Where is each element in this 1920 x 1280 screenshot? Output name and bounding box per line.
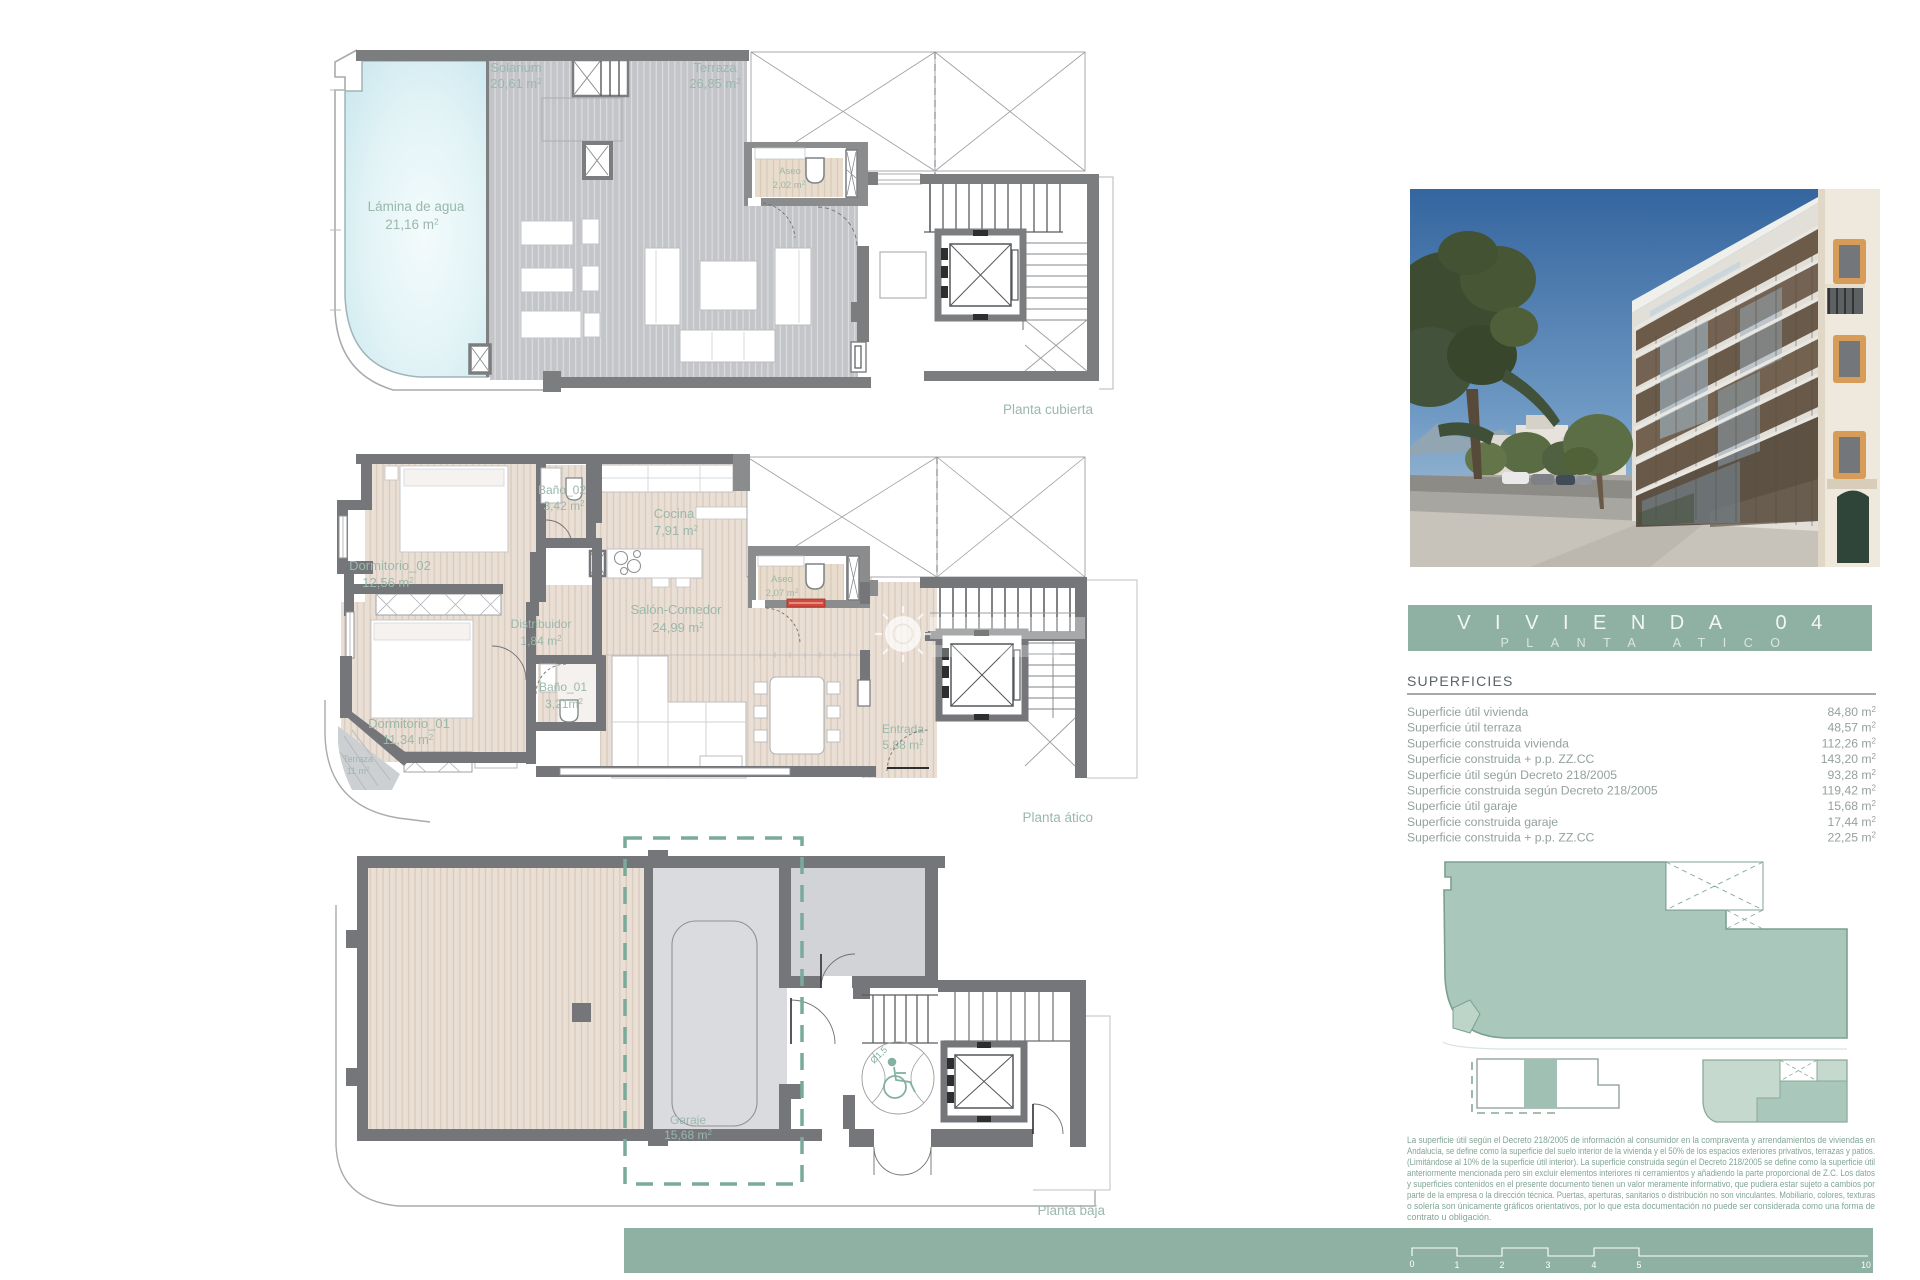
svg-text:112,26 m2: 112,26 m2 — [1822, 736, 1877, 750]
svg-text:parte de la empresa o la direc: parte de la empresa o la dirección técni… — [1407, 1190, 1875, 1200]
svg-text:17,44 m2: 17,44 m2 — [1828, 815, 1877, 829]
svg-text:Terraza: Terraza — [343, 754, 373, 764]
svg-text:15,68 m2: 15,68 m2 — [664, 1128, 712, 1142]
svg-text:12,56 m2: 12,56 m2 — [362, 575, 414, 590]
svg-text:Superficie útil vivienda: Superficie útil vivienda — [1407, 705, 1528, 719]
svg-text:Superficie útil garaje: Superficie útil garaje — [1407, 799, 1518, 813]
svg-text:y superficies contenidos en el: y superficies contenidos en el presente … — [1407, 1179, 1875, 1189]
svg-text:Salón-Comedor: Salón-Comedor — [630, 602, 722, 617]
svg-text:Dormitorio_01: Dormitorio_01 — [368, 716, 450, 731]
svg-text:21,16 m2: 21,16 m2 — [385, 217, 439, 233]
svg-text:5: 5 — [1637, 1260, 1642, 1270]
svg-text:1,84 m2: 1,84 m2 — [520, 634, 562, 648]
svg-text:Aseo: Aseo — [779, 166, 801, 177]
svg-text:Baño_01: Baño_01 — [539, 680, 587, 694]
svg-text:3: 3 — [1546, 1260, 1551, 1270]
svg-text:2,02 m2: 2,02 m2 — [773, 180, 806, 191]
svg-text:2,07 m2: 2,07 m2 — [766, 588, 799, 599]
svg-text:5,88 m2: 5,88 m2 — [882, 738, 924, 752]
svg-text:Entrada: Entrada — [882, 722, 924, 736]
svg-text:143,20 m2: 143,20 m2 — [1821, 752, 1877, 766]
svg-text:20,61 m2: 20,61 m2 — [490, 76, 542, 91]
svg-text:La superficie útil según el De: La superficie útil según el Decreto 218/… — [1407, 1135, 1875, 1145]
svg-text:4: 4 — [1592, 1260, 1597, 1270]
svg-text:PLANTA ATICO: PLANTA ATICO — [1500, 636, 1797, 650]
svg-text:Dormitorio_02: Dormitorio_02 — [349, 558, 431, 573]
svg-text:3,21m2: 3,21m2 — [545, 697, 583, 711]
svg-text:o solería son únicamente gráfi: o solería son únicamente gráficos orient… — [1407, 1201, 1875, 1211]
svg-text:Garaje: Garaje — [670, 1113, 706, 1127]
svg-text:84,80 m2: 84,80 m2 — [1828, 705, 1877, 719]
svg-text:Lámina de agua: Lámina de agua — [368, 199, 465, 214]
svg-text:Baño_02: Baño_02 — [538, 483, 586, 497]
svg-text:Distribuidor: Distribuidor — [511, 617, 572, 631]
svg-text:26,85 m2: 26,85 m2 — [689, 76, 741, 91]
svg-text:Superficie construida + p.p. Z: Superficie construida + p.p. ZZ.CC — [1407, 831, 1594, 845]
svg-text:48,57 m2: 48,57 m2 — [1828, 721, 1877, 735]
svg-text:(Limitándose al 10% de la supe: (Limitándose al 10% de la superficie úti… — [1407, 1157, 1875, 1167]
svg-text:Superficie construida garaje: Superficie construida garaje — [1407, 815, 1558, 829]
svg-text:11,34 m2: 11,34 m2 — [383, 732, 434, 747]
svg-text:contrato u obligación.: contrato u obligación. — [1407, 1212, 1491, 1222]
svg-text:15,68 m2: 15,68 m2 — [1828, 799, 1877, 813]
svg-text:0: 0 — [1410, 1259, 1415, 1269]
svg-text:Cocina: Cocina — [654, 506, 695, 521]
svg-text:Ø1,5: Ø1,5 — [868, 1045, 889, 1066]
svg-text:Terraza: Terraza — [693, 60, 737, 75]
svg-text:93,28 m2: 93,28 m2 — [1828, 768, 1877, 782]
svg-text:SUPERFICIES: SUPERFICIES — [1407, 673, 1514, 689]
svg-text:Planta ático: Planta ático — [1022, 810, 1093, 825]
svg-text:Solarium: Solarium — [490, 60, 541, 75]
svg-text:Superficie construida + p.p. Z: Superficie construida + p.p. ZZ.CC — [1407, 752, 1594, 766]
svg-text:22,25 m2: 22,25 m2 — [1828, 831, 1877, 845]
svg-text:anteriormente mencionada pero: anteriormente mencionada pero sin exclui… — [1407, 1168, 1876, 1178]
svg-text:119,42 m2: 119,42 m2 — [1822, 784, 1877, 798]
svg-text:Superficie útil terraza: Superficie útil terraza — [1407, 721, 1522, 735]
svg-text:24,99 m2: 24,99 m2 — [652, 620, 704, 635]
svg-text:2: 2 — [1500, 1260, 1505, 1270]
svg-text:Superficie construida vivienda: Superficie construida vivienda — [1407, 736, 1569, 750]
svg-text:3,42 m2: 3,42 m2 — [543, 499, 585, 513]
svg-text:Aseo: Aseo — [771, 574, 793, 585]
svg-text:7,91 m2: 7,91 m2 — [654, 523, 699, 538]
svg-text:Andalucía, se define como la s: Andalucía, se define como la superficie … — [1407, 1146, 1875, 1156]
svg-text:VIVIENDA 04: VIVIENDA 04 — [1457, 612, 1847, 634]
svg-text:Superficie construida según De: Superficie construida según Decreto 218/… — [1407, 784, 1658, 798]
svg-text:Planta cubierta: Planta cubierta — [1003, 402, 1094, 417]
svg-text:1: 1 — [1455, 1260, 1460, 1270]
svg-text:10: 10 — [1861, 1260, 1871, 1270]
svg-text:Planta baja: Planta baja — [1037, 1203, 1105, 1218]
svg-text:Superficie útil según Decreto: Superficie útil según Decreto 218/2005 — [1407, 768, 1617, 782]
